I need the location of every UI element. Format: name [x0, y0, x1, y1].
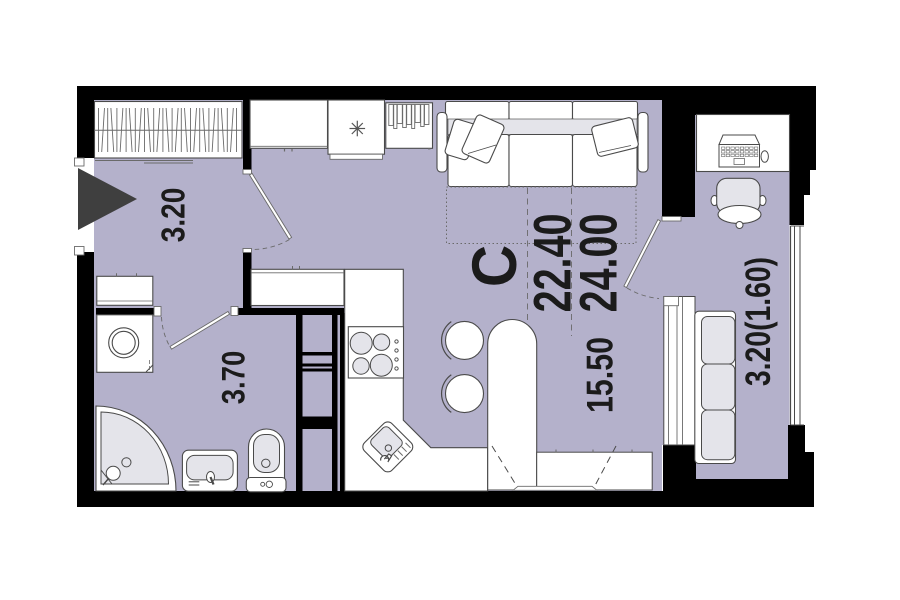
svg-text:3.70: 3.70 — [217, 351, 252, 405]
svg-text:3.20: 3.20 — [155, 188, 192, 243]
svg-text:24.00: 24.00 — [569, 214, 628, 313]
svg-text:3.20(1.60): 3.20(1.60) — [738, 257, 778, 386]
svg-text:15.50: 15.50 — [580, 337, 622, 413]
svg-text:С: С — [459, 245, 529, 287]
